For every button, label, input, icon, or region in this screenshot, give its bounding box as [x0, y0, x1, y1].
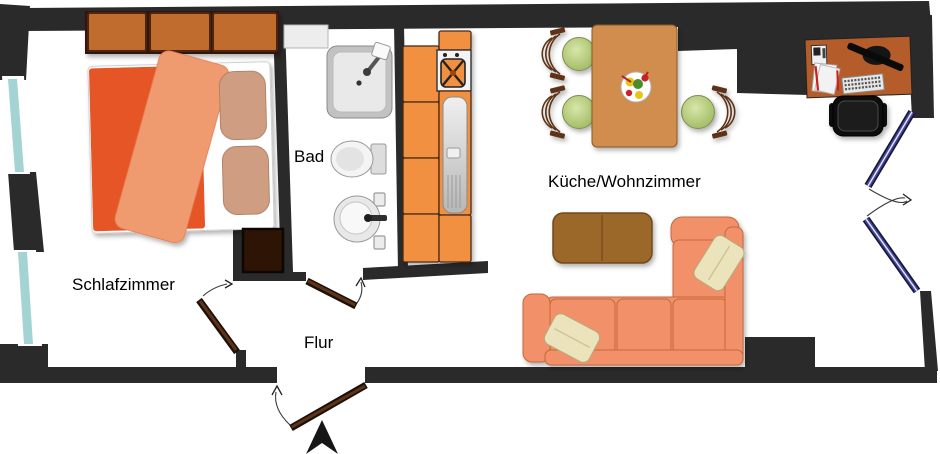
shower-drain — [356, 80, 361, 85]
stove-knob — [455, 53, 459, 57]
dresser-icon — [243, 229, 283, 272]
entrance-door — [272, 385, 366, 454]
floor-plan: Schlafzimmer Bad Flur Küche/Wohnzimmer — [0, 0, 940, 454]
stove-knob — [443, 53, 447, 57]
kitchen-south-wall — [363, 261, 488, 280]
sink-faucet — [447, 148, 460, 158]
wardrobe-section — [150, 13, 210, 51]
stove-icon — [437, 50, 471, 91]
wardrobe-section — [88, 13, 146, 51]
bedroom-furniture — [85, 11, 283, 272]
living-area — [523, 213, 747, 365]
bathroom-fixtures — [284, 25, 392, 249]
radiator-icon — [284, 25, 328, 48]
wardrobe-icon — [85, 11, 279, 54]
kitchen-living-label: Küche/Wohnzimmer — [548, 172, 701, 191]
cabinet-icon — [439, 31, 471, 50]
cabinet-icon — [403, 158, 439, 214]
kitchen-unit — [403, 31, 471, 262]
burner-center — [450, 70, 456, 76]
toilet-icon — [331, 141, 386, 177]
floor-plan-canvas: Schlafzimmer Bad Flur Küche/Wohnzimmer — [0, 0, 940, 454]
sofa-armrest — [523, 294, 550, 362]
coffee-table-icon — [553, 213, 652, 263]
chair-icon — [542, 85, 595, 139]
kitchen-sink-icon — [443, 97, 467, 213]
hall-bath-wall — [233, 272, 306, 281]
cabinet-icon — [403, 214, 439, 262]
bathroom-label: Bad — [294, 147, 324, 166]
pillow-icon — [219, 71, 267, 140]
phone-icon — [811, 45, 827, 65]
shelf-item — [374, 193, 385, 206]
cabinet-icon — [403, 46, 439, 102]
cabinet-icon — [439, 215, 471, 262]
wardrobe-section — [213, 13, 277, 51]
desk-area — [805, 36, 912, 136]
chair-icon — [542, 27, 595, 81]
hallway-label: Flur — [304, 333, 334, 352]
north-arrow-icon — [306, 420, 338, 454]
left-wall-mid — [8, 172, 44, 252]
sofa-cushion — [673, 299, 727, 353]
bedroom-label: Schlafzimmer — [72, 275, 175, 294]
bathroom-door — [307, 278, 365, 306]
sofa-cushion — [617, 299, 671, 353]
flower-vase-icon — [621, 72, 651, 102]
right-wall-lower — [920, 291, 938, 371]
bedroom-door — [199, 280, 237, 352]
office-chair-icon — [829, 96, 887, 136]
shelf-item — [374, 236, 385, 249]
left-wall-top — [0, 4, 30, 80]
toilet-lid — [336, 147, 364, 171]
basin-drain — [364, 214, 372, 222]
pillow-icon — [222, 146, 270, 215]
balcony-double-door — [866, 112, 917, 291]
chimney-block — [678, 20, 808, 95]
entry-door-stub — [236, 350, 246, 368]
chair-icon — [682, 85, 735, 139]
double-bed-icon — [87, 46, 274, 248]
shower-knob — [363, 68, 371, 76]
cabinet-icon — [403, 102, 439, 158]
shower-icon — [327, 42, 392, 118]
washbasin-icon — [334, 193, 387, 249]
